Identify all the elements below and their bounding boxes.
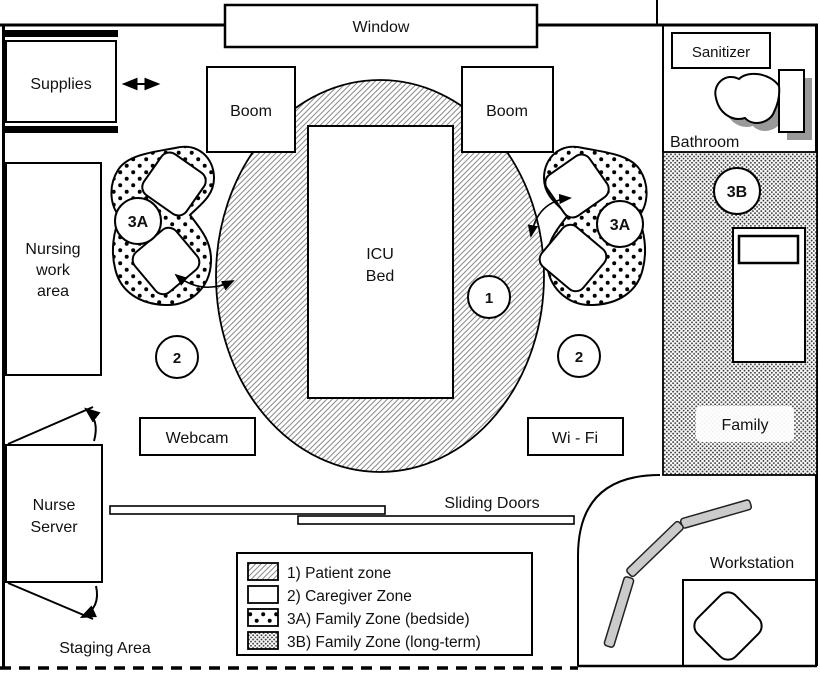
supplies-label: Supplies <box>30 76 91 93</box>
door-swing-arrow-bottom-icon <box>82 586 97 617</box>
toilet-icon <box>715 70 812 140</box>
floorplan-svg: Window Supplies Boom Boom ICU Bed 1 <box>0 0 820 673</box>
toilet-bowl <box>715 74 779 123</box>
staging-area-label: Staging Area <box>59 640 151 657</box>
boom-left-label: Boom <box>230 103 272 120</box>
window: Window <box>225 5 537 47</box>
boom-right-label: Boom <box>486 103 528 120</box>
sliding-doors: Sliding Doors <box>110 495 574 524</box>
zone-marker-3a-left-label: 3A <box>128 214 149 231</box>
workstation-area: Workstation <box>578 475 816 666</box>
zone-marker-2-right: 2 <box>558 335 600 377</box>
webcam-label: Webcam <box>166 430 229 447</box>
boom-right: Boom <box>462 67 553 152</box>
zone-marker-2-left-label: 2 <box>173 350 181 367</box>
toilet-tank <box>779 70 804 132</box>
door-swing-arrow-top-icon <box>86 409 96 441</box>
nursing-label-line1: Nursing <box>25 241 80 258</box>
webcam: Webcam <box>140 418 255 455</box>
family-label: Family <box>721 417 768 434</box>
legend-swatch-plain-white <box>248 586 278 603</box>
workstation-chair <box>690 588 766 664</box>
zone-marker-3a-right-label: 3A <box>610 217 631 234</box>
family-zone-bedside-left: 3A <box>111 147 233 305</box>
nurse-server-label-line2: Server <box>30 519 78 536</box>
family-bed-pillow <box>739 236 798 263</box>
nursing-work-area: Nursing work area <box>6 163 101 375</box>
wifi: Wi - Fi <box>528 418 623 455</box>
nursing-label-line2: work <box>35 262 71 279</box>
wifi-label: Wi - Fi <box>552 430 598 447</box>
legend-swatch-dots-dense <box>248 632 278 649</box>
icu-bed: ICU Bed <box>308 126 453 398</box>
family-zone-bedside-right: 3A <box>531 147 647 305</box>
legend-swatch-dots-sparse <box>248 609 278 626</box>
workstation-label: Workstation <box>710 555 794 572</box>
screen-segment <box>626 520 685 577</box>
nurse-server-label-line1: Nurse <box>33 497 76 514</box>
zone-marker-1-label: 1 <box>485 290 493 307</box>
supplies-wall-bar-top <box>2 30 118 37</box>
supplies-wall-bar-bottom <box>2 126 118 133</box>
icu-bed-label-line1: ICU <box>366 246 394 263</box>
bathroom-label: Bathroom <box>670 134 739 151</box>
supplies-area: Supplies <box>2 30 158 133</box>
nursing-label-line3: area <box>37 283 69 300</box>
workstation-boundary-curve <box>578 475 660 666</box>
zone-marker-2-left: 2 <box>156 336 198 378</box>
icu-bed-label-line2: Bed <box>366 268 394 285</box>
sanitizer-label: Sanitizer <box>692 44 750 61</box>
zone-marker-2-right-label: 2 <box>575 349 583 366</box>
door-swing-line-top <box>8 407 93 444</box>
legend-item-label: 1) Patient zone <box>287 565 391 582</box>
legend-swatch-hatch-diagonal <box>248 563 278 580</box>
zone-marker-3b-label: 3B <box>727 184 747 201</box>
window-label: Window <box>353 19 410 36</box>
sliding-doors-label: Sliding Doors <box>444 495 539 512</box>
legend: 1) Patient zone 2) Caregiver Zone 3A) Fa… <box>237 553 532 655</box>
screen-segment <box>604 576 635 648</box>
nurse-server: Nurse Server <box>6 407 102 619</box>
family-bed <box>733 228 805 362</box>
legend-item-label: 2) Caregiver Zone <box>287 588 412 605</box>
family-zone-longterm: 3B Family <box>663 152 817 475</box>
icu-room-floorplan: Window Supplies Boom Boom ICU Bed 1 <box>0 0 820 673</box>
door-swing-line-bottom <box>8 583 93 619</box>
screen-segment <box>680 499 752 528</box>
sliding-door-panel-1 <box>110 506 385 514</box>
legend-item-label: 3A) Family Zone (bedside) <box>287 611 470 628</box>
boom-left: Boom <box>207 67 295 152</box>
bathroom: Sanitizer Bathroom <box>663 25 812 152</box>
legend-item-label: 3B) Family Zone (long-term) <box>287 634 481 651</box>
sliding-door-panel-2 <box>298 516 574 524</box>
zone-marker-1: 1 <box>468 276 510 318</box>
